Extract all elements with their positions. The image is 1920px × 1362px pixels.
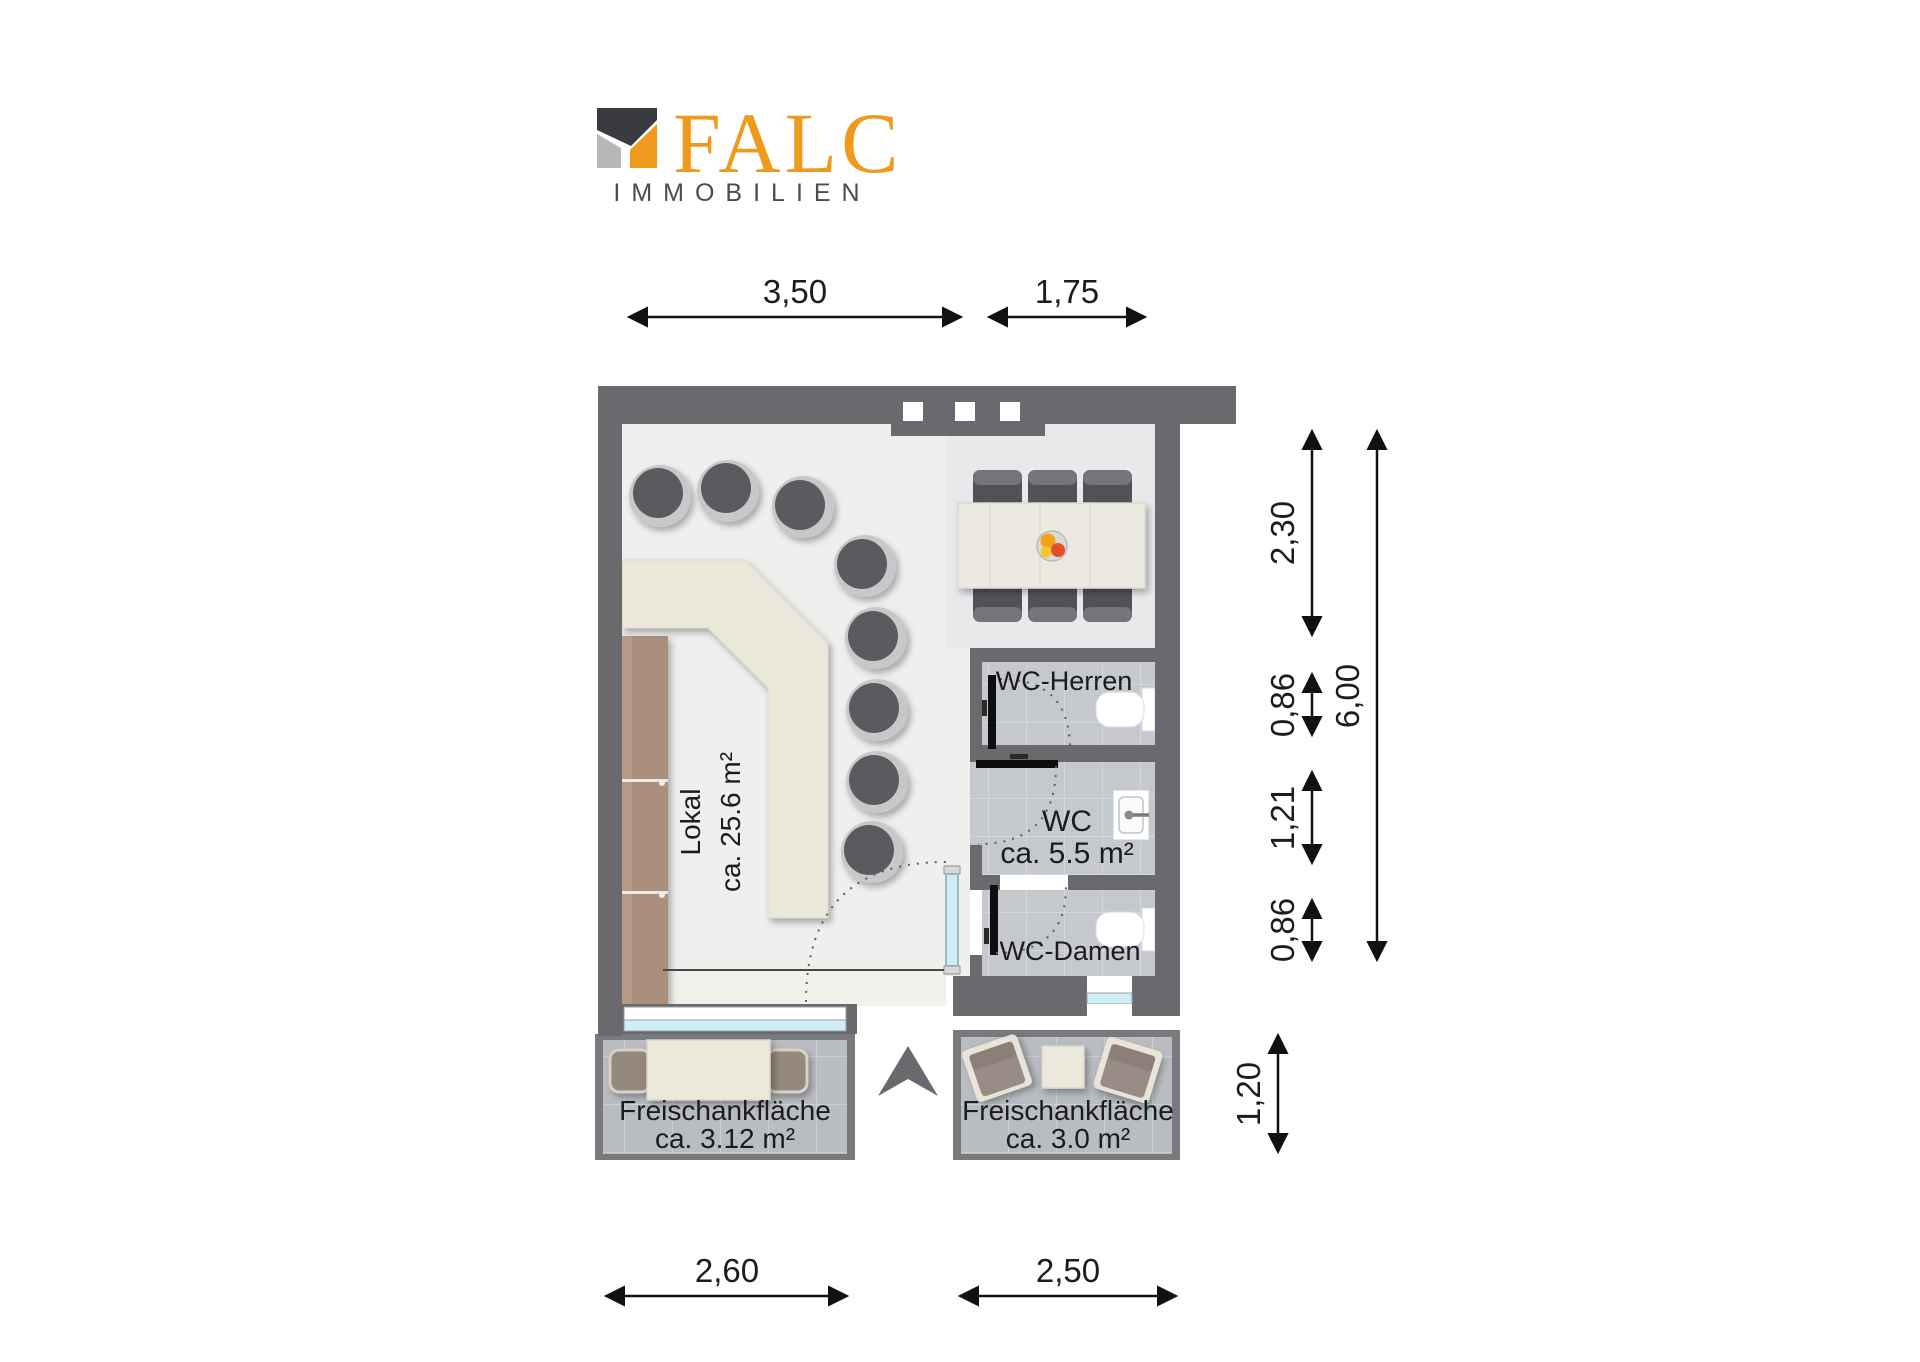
- wall-wc-left: [970, 845, 982, 875]
- terrace-left-table: [647, 1040, 770, 1100]
- dim-label: 6,00: [1329, 664, 1366, 728]
- logo-subtitle: IMMOBILIEN: [613, 179, 870, 207]
- dim-label: 1,75: [1035, 273, 1099, 310]
- dim-label: 0,86: [1264, 673, 1301, 737]
- wall-left: [598, 386, 622, 1036]
- bar-stool: [846, 751, 908, 813]
- door-leaf-damen: [990, 885, 998, 955]
- wall-wc-left: [970, 662, 982, 745]
- bar-stool: [834, 535, 896, 597]
- terrace-left-chair: [610, 1050, 650, 1092]
- bar-stool: [697, 460, 759, 522]
- dim-label: 1,20: [1230, 1062, 1267, 1126]
- bar-stool: [629, 465, 691, 527]
- terrace-right-label: Freischankfläche: [962, 1095, 1174, 1126]
- wc-label: WC: [1042, 805, 1092, 838]
- bar-stool: [846, 679, 908, 741]
- door-handle: [1010, 754, 1028, 759]
- bar-stool: [841, 821, 903, 883]
- window: [1000, 402, 1020, 421]
- terrace-left-area-label: ca. 3.12 m²: [655, 1123, 795, 1154]
- door-handle: [984, 928, 989, 944]
- dim-label: 1,21: [1264, 786, 1301, 850]
- entrance-arrow-icon: [878, 1046, 938, 1096]
- fruit-bowl: [1037, 531, 1067, 561]
- dim-label: 3,50: [763, 273, 827, 310]
- door-leaf-wc: [976, 760, 1058, 768]
- terrace-right-area-label: ca. 3.0 m²: [1006, 1123, 1130, 1154]
- window: [955, 402, 975, 421]
- wc-damen-label: WC-Damen: [999, 936, 1140, 966]
- wall-wc-bottom: [1132, 976, 1180, 1016]
- wall-wc-divider2: [1068, 875, 1155, 890]
- window: [903, 402, 923, 421]
- dim-label: 0,86: [1264, 898, 1301, 962]
- wall-wc-top: [970, 648, 1180, 662]
- lokal-label: Lokal: [675, 789, 706, 856]
- dim-label: 2,50: [1036, 1252, 1100, 1289]
- bar-stool: [772, 476, 834, 538]
- dining-set: [958, 470, 1145, 622]
- sink: [1113, 790, 1149, 840]
- bar-stool: [845, 607, 907, 669]
- entry-walkway-floor: [622, 968, 946, 1006]
- wc-herren-label: WC-Herren: [996, 666, 1133, 696]
- logo-brand: FALC: [673, 95, 902, 191]
- lokal-area-label: ca. 25.6 m²: [715, 752, 746, 892]
- back-counter: [622, 636, 668, 1004]
- door-handle: [982, 700, 987, 716]
- dim-label: 2,60: [695, 1252, 759, 1289]
- terrace-right-table: [1042, 1046, 1084, 1088]
- wall-top-niche: [891, 424, 1045, 436]
- terrace-left-label: Freischankfläche: [619, 1095, 831, 1126]
- wall-wc-left: [970, 955, 982, 976]
- window-front: [624, 1007, 846, 1031]
- floor-plan: FALC IMMOBILIEN: [0, 0, 1920, 1357]
- window-wc-damen: [1087, 977, 1132, 1015]
- wall-wc-divider1: [970, 745, 1155, 762]
- terrace-left-chair: [767, 1050, 807, 1092]
- entry-door: [944, 866, 960, 974]
- falc-logo: FALC IMMOBILIEN: [597, 95, 902, 207]
- wall-wc-bottom: [953, 976, 1087, 1016]
- wall-right: [1155, 424, 1180, 1016]
- dim-label: 2,30: [1264, 501, 1301, 565]
- wc-area-label: ca. 5.5 m²: [1000, 837, 1133, 870]
